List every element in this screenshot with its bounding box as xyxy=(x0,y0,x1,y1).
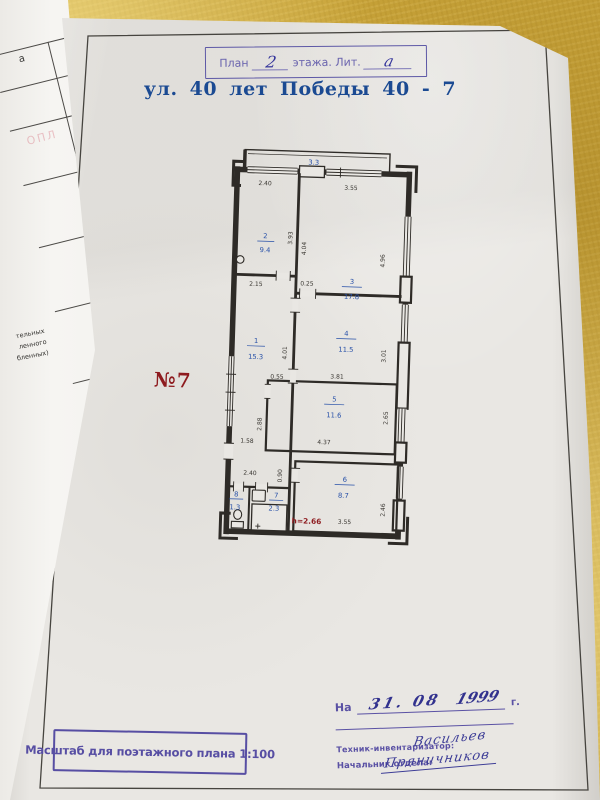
room3-number: 3 xyxy=(350,278,355,286)
dim: 4.04 xyxy=(301,241,308,255)
dim: 4.37 xyxy=(317,439,331,446)
wall-left xyxy=(226,166,238,534)
underlying-text-fragments: тельных ленного бленных) xyxy=(0,326,50,367)
handwritten-liter: а xyxy=(363,54,415,69)
floor-plan-stamp: План 2 этажа. Лит. а xyxy=(205,45,427,79)
scale-stamp: Масштаб для поэтажного плана 1:100 xyxy=(53,729,248,775)
room4-area: 11.5 xyxy=(338,346,353,354)
dim: 4.96 xyxy=(379,254,386,268)
ceiling-height-note: h=2.66 xyxy=(292,516,322,526)
date-prefix: На xyxy=(335,701,352,715)
dim: 3.55 xyxy=(344,185,358,192)
dim: 0.55 xyxy=(270,373,284,380)
room1-number: 1 xyxy=(254,337,259,345)
entry-door-opening xyxy=(223,443,233,459)
dim: 1.58 xyxy=(240,438,254,445)
room7-area: 2.3 xyxy=(268,504,279,512)
document-page: План 2 этажа. Лит. а ул. 40 лет Победы 4… xyxy=(0,0,600,800)
room6-number: 6 xyxy=(343,476,348,484)
window-top-left xyxy=(247,165,297,176)
window-top-right xyxy=(326,167,381,179)
room8-area: 1.3 xyxy=(229,503,240,511)
date-signature-stamp: На 31. 08 1999 г. Техник-инвентаризатор:… xyxy=(335,693,533,782)
sink-symbol xyxy=(252,490,265,501)
dim: 2.40 xyxy=(258,180,272,187)
room8-number: 8 xyxy=(234,490,239,498)
floor-plan-drawing: 3.3 2 9.4 3 17.8 1 15.3 4 11.5 5 11.6 6 … xyxy=(218,141,423,551)
wall-wc-bath-divider xyxy=(248,487,249,531)
dim: 2.15 xyxy=(249,281,263,288)
date-suffix: г. xyxy=(511,697,520,708)
floor-plan-svg: 3.3 2 9.4 3 17.8 1 15.3 4 11.5 5 11.6 6 … xyxy=(218,141,423,551)
dim: 2.46 xyxy=(380,503,387,517)
room7-number: 7 xyxy=(274,492,279,500)
room6-area: 8.7 xyxy=(338,492,349,500)
underlying-text-fragment: а xyxy=(18,53,27,65)
dim: 2.40 xyxy=(243,470,257,477)
room2-area: 9.4 xyxy=(259,246,270,254)
stamp-label-liter: этажа. Лит. xyxy=(292,55,360,69)
dim: 3.55 xyxy=(338,519,352,526)
dim: 0.25 xyxy=(300,280,314,287)
balcony-area: 3.3 xyxy=(308,159,319,167)
dim: 0.90 xyxy=(277,469,284,483)
handwritten-year: 1999 xyxy=(453,687,501,709)
handwritten-floor-number: 2 xyxy=(251,55,290,70)
stamp-label-plan: План xyxy=(219,56,248,69)
room5-number: 5 xyxy=(332,395,337,403)
dim: 4.01 xyxy=(282,346,289,360)
dim: 3.01 xyxy=(381,349,388,363)
balcony-door-unit xyxy=(299,166,324,178)
room1-area: 15.3 xyxy=(248,353,263,361)
room4-number: 4 xyxy=(344,330,349,338)
room5-area: 11.6 xyxy=(326,411,341,419)
apartment-number-label: №7 xyxy=(154,367,192,392)
dim: 2.65 xyxy=(383,411,390,425)
room2-number: 2 xyxy=(263,232,268,240)
dim: 3.81 xyxy=(330,373,344,380)
dim: 2.88 xyxy=(256,417,263,431)
dim: 3.93 xyxy=(287,231,294,245)
room3-area: 17.8 xyxy=(344,293,359,301)
windows-right-wall xyxy=(393,217,414,531)
faint-stamp-trace: ОПЛ xyxy=(25,128,58,148)
window-left-wall xyxy=(224,356,236,426)
stove-symbol xyxy=(236,256,244,264)
toilet-symbol xyxy=(231,510,244,529)
page-title-address: ул. 40 лет Победы 40 - 7 xyxy=(120,78,480,100)
